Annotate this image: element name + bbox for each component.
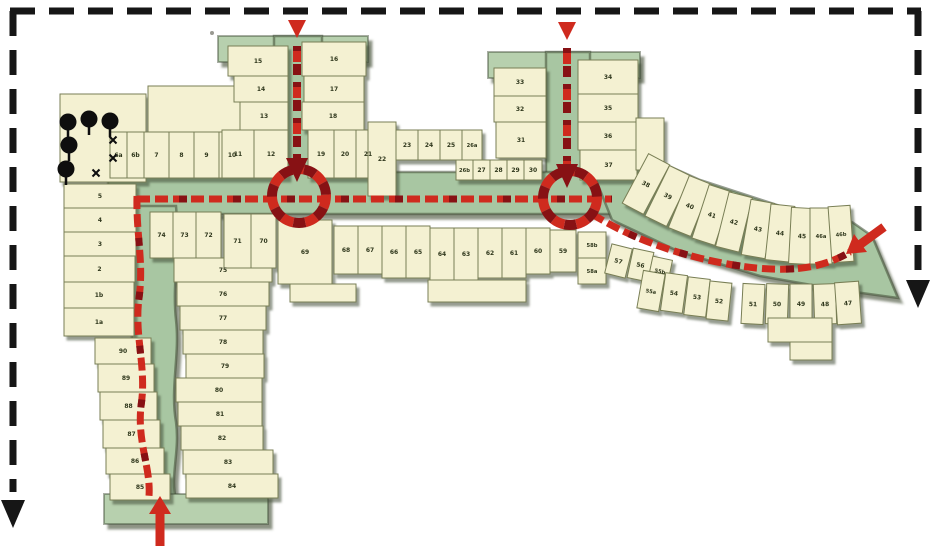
plot-label: 1a xyxy=(95,319,103,326)
plot-label: 60 xyxy=(534,248,542,255)
stray-speck xyxy=(210,31,214,35)
plot-label: 24 xyxy=(425,142,433,149)
plot-label: 71 xyxy=(233,238,241,245)
plot-label: 69 xyxy=(301,249,309,256)
plot-label: 83 xyxy=(224,459,232,466)
plot-label: 2 xyxy=(97,266,101,273)
plot-label: 73 xyxy=(180,232,188,239)
plot-label: 67 xyxy=(366,247,374,254)
plot-label: 29 xyxy=(511,167,519,174)
plot-label: 28 xyxy=(494,167,502,174)
plot-label: 79 xyxy=(221,363,229,370)
plot-label: 18 xyxy=(329,113,337,120)
plot-label: 31 xyxy=(517,137,525,144)
plot-label: 50 xyxy=(773,301,782,308)
plot-label: 74 xyxy=(157,232,165,239)
plot-label: 62 xyxy=(486,250,494,257)
plot-label: 70 xyxy=(259,238,267,245)
site-plan-figure: 6a6b7891054321b1a90898887868575767778798… xyxy=(0,0,932,551)
tree-icon xyxy=(102,113,119,130)
plot-label: 12 xyxy=(267,151,275,158)
tree-icon xyxy=(60,114,77,131)
plot-label: 34 xyxy=(604,74,612,81)
plot-label: 8 xyxy=(179,152,183,159)
plot-label: 26a xyxy=(467,143,478,149)
plot-label: 11 xyxy=(234,151,242,158)
plot-label: 48 xyxy=(821,301,830,308)
plot-block xyxy=(428,280,526,302)
plot-label: 77 xyxy=(219,315,227,322)
plot-label: 58a xyxy=(587,269,598,275)
plot-label: 85 xyxy=(136,484,144,491)
plot-label: 30 xyxy=(529,167,537,174)
plot-label: 19 xyxy=(317,151,325,158)
plot-label: 35 xyxy=(604,105,612,112)
plot-label: 65 xyxy=(414,249,422,256)
plot-label: 66 xyxy=(390,249,398,256)
plot-label: 76 xyxy=(219,291,227,298)
plot-label: 17 xyxy=(330,86,338,93)
plot-label: 32 xyxy=(516,106,524,113)
plot-label: 51 xyxy=(749,301,758,308)
plot-label: 72 xyxy=(204,232,212,239)
plot-label: 26b xyxy=(459,168,470,174)
plot-label: 89 xyxy=(122,375,130,382)
plot-block xyxy=(148,86,244,132)
plot-label: 23 xyxy=(403,142,411,149)
plot-label: 47 xyxy=(844,300,853,308)
plot-label: 16 xyxy=(330,56,338,63)
plot-label: 6b xyxy=(131,152,140,159)
plot-label: 21 xyxy=(364,151,372,158)
plot-label: 64 xyxy=(438,251,446,258)
plot-label: 25 xyxy=(447,142,455,149)
plot-label: 15 xyxy=(254,58,262,65)
plot-label: 37 xyxy=(604,162,612,169)
north-entry-east-arrow-icon xyxy=(558,22,576,40)
plot-label: 45 xyxy=(798,233,807,240)
plot-label: 80 xyxy=(215,387,223,394)
plot-label: 84 xyxy=(228,483,236,490)
plot-label: 53 xyxy=(692,294,701,302)
site-plan-canvas: 6a6b7891054321b1a90898887868575767778798… xyxy=(0,0,932,551)
plot-label: 88 xyxy=(124,403,132,410)
plot-label: 58b xyxy=(587,243,598,249)
plot-label: 46a xyxy=(816,234,827,240)
plot-label: 49 xyxy=(797,301,805,308)
tree-icon xyxy=(61,137,78,154)
boundary-arrow-right-icon xyxy=(906,280,930,308)
plot-label: 81 xyxy=(216,411,224,418)
plot-label: 78 xyxy=(219,339,227,346)
plot-label: 43 xyxy=(753,226,762,234)
plot-label: 61 xyxy=(510,250,518,257)
plot-label: 36 xyxy=(604,133,612,140)
boundary-arrow-left-icon xyxy=(1,500,25,528)
plot-label: 75 xyxy=(219,267,227,274)
plot-label: 90 xyxy=(119,348,127,355)
plot-label: 82 xyxy=(218,435,226,442)
plot-block xyxy=(768,318,832,342)
plot-block xyxy=(790,342,832,360)
plot-label: 20 xyxy=(341,151,349,158)
plot-label: 87 xyxy=(127,431,135,438)
plot-label: 4 xyxy=(98,217,102,224)
plot-label: 59 xyxy=(559,248,567,255)
plot-label: 33 xyxy=(516,79,524,86)
plot-label: 54 xyxy=(669,290,678,298)
plot-label: 86 xyxy=(131,458,139,465)
plot-label: 22 xyxy=(378,156,386,163)
plot-label: 63 xyxy=(462,251,470,258)
plot-label: 3 xyxy=(98,241,102,248)
plot-label: 1b xyxy=(95,292,104,299)
tree-icon xyxy=(81,111,98,128)
plot-label: 13 xyxy=(260,113,268,120)
plot-label: 27 xyxy=(477,167,485,174)
plot-label: 9 xyxy=(204,152,208,159)
tree-icon xyxy=(58,161,75,178)
plot-block xyxy=(290,284,356,302)
plot-label: 44 xyxy=(775,230,784,238)
plot-label: 14 xyxy=(257,86,265,93)
plot-label: 46b xyxy=(835,232,847,239)
plot-label: 5 xyxy=(98,193,102,200)
plot-label: 7 xyxy=(154,152,158,159)
plot-label: 68 xyxy=(342,247,350,254)
plot-label: 52 xyxy=(714,298,723,306)
